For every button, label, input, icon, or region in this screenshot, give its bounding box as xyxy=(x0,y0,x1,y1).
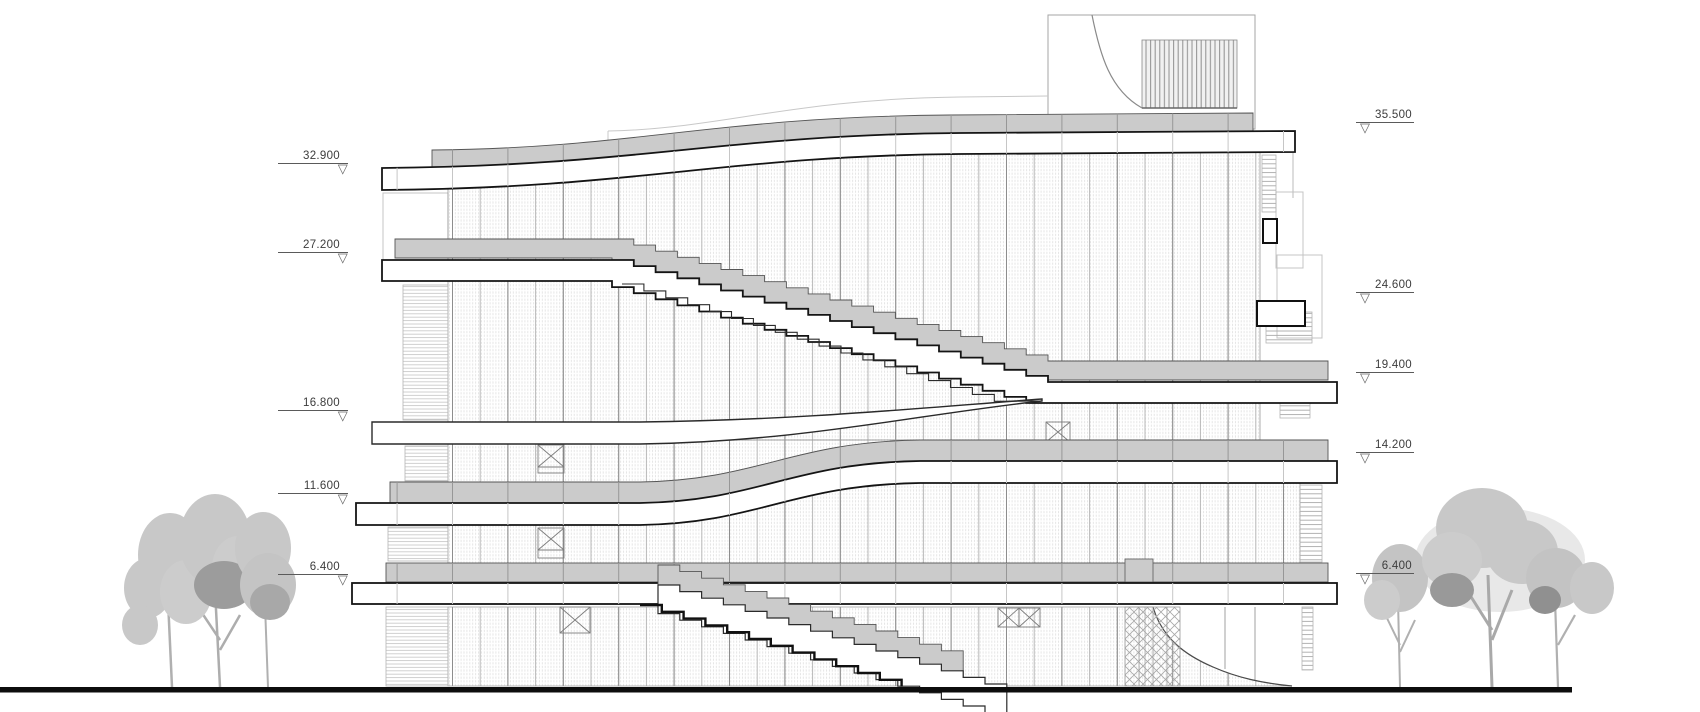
level-value: 11.600 xyxy=(304,480,340,492)
lattice-column xyxy=(1125,607,1180,686)
level-marker-left-27200: 27.200 ▽ xyxy=(278,238,348,253)
level-marker-left-6400: 6.400 ▽ xyxy=(278,560,348,575)
level-value: 19.400 xyxy=(1375,359,1412,371)
level-marker-right-14200: 14.200 ▽ xyxy=(1356,438,1414,453)
datum-triangle-icon: ▽ xyxy=(338,162,348,175)
datum-triangle-icon: ▽ xyxy=(1360,451,1370,464)
tree-group-right xyxy=(1364,488,1614,687)
facade-boxes-right xyxy=(1257,219,1305,326)
elevation-linework xyxy=(0,0,1700,712)
level-value: 6.400 xyxy=(1382,560,1412,572)
datum-triangle-icon: ▽ xyxy=(338,492,348,505)
datum-triangle-icon: ▽ xyxy=(338,251,348,264)
level-marker-left-16800: 16.800 ▽ xyxy=(278,396,348,411)
level-value: 6.400 xyxy=(310,561,340,573)
ground-line xyxy=(0,687,1572,693)
datum-triangle-icon: ▽ xyxy=(1360,291,1370,304)
level-value: 32.900 xyxy=(303,150,340,162)
level-marker-right-35500: 35.500 ▽ xyxy=(1356,108,1414,123)
level-value: 24.600 xyxy=(1375,279,1412,291)
datum-triangle-icon: ▽ xyxy=(338,409,348,422)
tree-group-left xyxy=(122,494,296,687)
level-marker-left-32900: 32.900 ▽ xyxy=(278,149,348,164)
band-notch xyxy=(1125,559,1153,582)
level-marker-left-11600: 11.600 ▽ xyxy=(278,479,348,494)
roof-slat-screen xyxy=(1142,40,1237,108)
datum-triangle-icon: ▽ xyxy=(338,573,348,586)
level-marker-right-6400: 6.400 ▽ xyxy=(1356,559,1414,574)
datum-triangle-icon: ▽ xyxy=(1360,371,1370,384)
level-value: 35.500 xyxy=(1375,109,1412,121)
level-marker-right-24600: 24.600 ▽ xyxy=(1356,278,1414,293)
level-value: 14.200 xyxy=(1375,439,1412,451)
datum-triangle-icon: ▽ xyxy=(1360,121,1370,134)
level-value: 16.800 xyxy=(303,397,340,409)
datum-triangle-icon: ▽ xyxy=(1360,572,1370,585)
level-value: 27.200 xyxy=(303,239,340,251)
elevation-drawing-canvas: 32.900 ▽ 27.200 ▽ 16.800 ▽ 11.600 ▽ 6.40… xyxy=(0,0,1700,712)
level-marker-right-19400: 19.400 ▽ xyxy=(1356,358,1414,373)
